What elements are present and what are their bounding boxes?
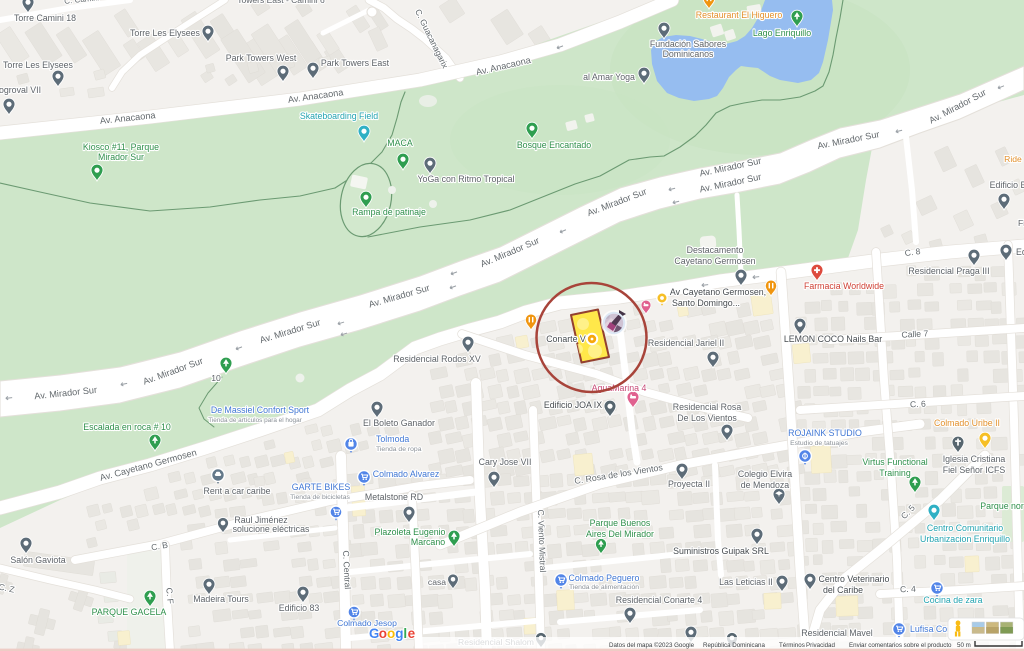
- svg-text:Farmacia Worldwide: Farmacia Worldwide: [804, 281, 884, 291]
- svg-text:Fiel Señor ICFS: Fiel Señor ICFS: [943, 465, 1006, 475]
- svg-text:Towers East - Camini 6: Towers East - Camini 6: [237, 0, 325, 5]
- svg-text:Virtus Functional: Virtus Functional: [862, 457, 927, 467]
- svg-text:Marcano: Marcano: [411, 537, 445, 547]
- svg-text:l: l: [403, 626, 407, 641]
- svg-text:Residencial Rosa: Residencial Rosa: [673, 402, 742, 412]
- svg-text:del Caribe: del Caribe: [823, 585, 863, 595]
- svg-text:C. F: C. F: [164, 587, 175, 604]
- svg-text:Privacidad: Privacidad: [806, 642, 835, 649]
- svg-text:10: 10: [211, 373, 221, 383]
- svg-text:Proyecta II: Proyecta II: [668, 479, 710, 489]
- svg-text:Fis: Fis: [1018, 218, 1024, 228]
- svg-text:Datos del mapa ©2023 Google: Datos del mapa ©2023 Google: [609, 642, 695, 649]
- svg-text:El Boleto Ganador: El Boleto Ganador: [363, 418, 435, 428]
- svg-text:Residencial Praga III: Residencial Praga III: [908, 266, 989, 276]
- svg-text:Restaurant El Higuero: Restaurant El Higuero: [696, 10, 783, 20]
- svg-text:Ride: Ride: [1004, 154, 1022, 164]
- svg-text:Ed: Ed: [1016, 247, 1024, 257]
- svg-text:Colegio Elvira: Colegio Elvira: [738, 469, 792, 479]
- svg-text:Colmado Peguero: Colmado Peguero: [569, 573, 640, 583]
- svg-text:ogroval VII: ogroval VII: [0, 85, 41, 95]
- svg-text:Training: Training: [879, 468, 911, 478]
- svg-text:Parque Buenos: Parque Buenos: [590, 518, 651, 528]
- svg-text:Enviar comentarios sobre el pr: Enviar comentarios sobre el producto: [849, 642, 952, 649]
- svg-text:Rampa de patinaje: Rampa de patinaje: [352, 207, 426, 217]
- svg-text:Plazoleta Eugenio: Plazoleta Eugenio: [375, 527, 446, 537]
- svg-text:Fundación Sabores: Fundación Sabores: [650, 39, 727, 49]
- svg-text:Tienda de artículos para el ho: Tienda de artículos para el hogar: [208, 417, 302, 424]
- svg-text:De Los Vientos: De Los Vientos: [677, 413, 737, 423]
- svg-text:Metalstone RD: Metalstone RD: [365, 492, 423, 502]
- svg-text:Kiosco #11, Parque: Kiosco #11, Parque: [83, 142, 159, 152]
- svg-text:Torre Les Elysees: Torre Les Elysees: [130, 28, 201, 38]
- svg-text:casa: casa: [428, 577, 446, 587]
- svg-text:Calle 7: Calle 7: [901, 328, 928, 339]
- svg-text:solucione eléctricas: solucione eléctricas: [233, 524, 310, 534]
- svg-text:GARTE BIKES: GARTE BIKES: [292, 482, 351, 492]
- svg-text:C. 6: C. 6: [910, 399, 926, 410]
- svg-text:Park Towers West: Park Towers West: [226, 53, 297, 63]
- svg-text:Colmado Uribe II: Colmado Uribe II: [934, 418, 1000, 428]
- svg-text:Residencial Mavel: Residencial Mavel: [801, 628, 872, 638]
- svg-text:Términos: Términos: [779, 642, 805, 649]
- svg-text:de Mendoza: de Mendoza: [741, 480, 790, 490]
- svg-text:Tolmoda: Tolmoda: [376, 434, 409, 444]
- svg-text:Skateboarding Field: Skateboarding Field: [300, 111, 378, 121]
- svg-text:Rent a car caribe: Rent a car caribe: [204, 486, 271, 496]
- svg-text:Av Cayetano Germosen,: Av Cayetano Germosen,: [670, 287, 766, 297]
- svg-text:Cayetano Germosen: Cayetano Germosen: [674, 256, 755, 266]
- svg-text:Torre Camini 18: Torre Camini 18: [14, 13, 76, 23]
- svg-text:LEMON COCO Nails Bar: LEMON COCO Nails Bar: [784, 334, 882, 344]
- svg-text:50 m: 50 m: [957, 642, 971, 649]
- svg-text:Bosque Encantado: Bosque Encantado: [517, 140, 591, 150]
- svg-text:C. 4: C. 4: [900, 584, 916, 595]
- svg-text:MACA: MACA: [387, 138, 413, 148]
- svg-text:Edificio 83: Edificio 83: [279, 603, 320, 613]
- svg-text:Dominicanos: Dominicanos: [663, 49, 714, 59]
- svg-text:Residencial Rodos XV: Residencial Rodos XV: [393, 354, 481, 364]
- svg-text:Mirador Sur: Mirador Sur: [98, 152, 144, 162]
- svg-text:Estudio de tatuajes: Estudio de tatuajes: [790, 440, 848, 447]
- svg-text:al Amar Yoga: al Amar Yoga: [583, 72, 635, 82]
- svg-text:Colmado Alvarez: Colmado Alvarez: [373, 469, 440, 479]
- svg-text:Las Leticias II: Las Leticias II: [719, 577, 773, 587]
- svg-text:Residencial Conarte 4: Residencial Conarte 4: [616, 595, 703, 605]
- svg-text:Aires Del Mirador: Aires Del Mirador: [586, 529, 654, 539]
- svg-text:Suministros Guipak SRL: Suministros Guipak SRL: [673, 546, 769, 556]
- svg-text:Madeira Tours: Madeira Tours: [193, 594, 249, 604]
- svg-text:Centro Comunitario: Centro Comunitario: [927, 523, 1003, 533]
- svg-text:Edificio B: Edificio B: [990, 180, 1024, 190]
- svg-text:Conarte V: Conarte V: [546, 334, 586, 344]
- svg-text:Residencial Jariel II: Residencial Jariel II: [648, 338, 724, 348]
- svg-text:ROJAINK STUDIO: ROJAINK STUDIO: [788, 428, 862, 438]
- svg-text:Cary Jose VII: Cary Jose VII: [479, 457, 532, 467]
- svg-text:o: o: [379, 626, 387, 641]
- svg-text:Escalada en roca # 10: Escalada en roca # 10: [83, 422, 171, 432]
- svg-text:Urbanizacion Enriquillo: Urbanizacion Enriquillo: [920, 534, 1010, 544]
- svg-text:Parque nor: Parque nor: [980, 501, 1024, 511]
- svg-text:PARQUE GACELA: PARQUE GACELA: [92, 607, 167, 617]
- svg-text:República Dominicana: República Dominicana: [703, 642, 765, 649]
- svg-text:Tienda de alimentación: Tienda de alimentación: [569, 584, 639, 591]
- svg-text:Lago Enriquillo: Lago Enriquillo: [753, 28, 811, 38]
- svg-text:Torre Les Elysees: Torre Les Elysees: [3, 60, 74, 70]
- svg-text:YoGa con Ritmo Tropical: YoGa con Ritmo Tropical: [418, 174, 515, 184]
- svg-text:Salón Gaviota: Salón Gaviota: [10, 555, 65, 565]
- svg-text:Cocina de zara: Cocina de zara: [923, 595, 982, 605]
- svg-text:De Massiel Confort Sport: De Massiel Confort Sport: [211, 405, 310, 415]
- svg-text:Park Towers East: Park Towers East: [321, 58, 390, 68]
- svg-text:g: g: [395, 626, 403, 641]
- svg-text:e: e: [408, 626, 416, 641]
- svg-text:Santo Domingo...: Santo Domingo...: [672, 298, 740, 308]
- svg-text:Iglesia Cristiana: Iglesia Cristiana: [943, 454, 1006, 464]
- svg-text:Destacamento: Destacamento: [687, 245, 744, 255]
- svg-text:Tienda de ropa: Tienda de ropa: [376, 446, 422, 453]
- svg-text:Edificio JOA IX: Edificio JOA IX: [544, 400, 602, 410]
- svg-text:C. Central: C. Central: [341, 550, 353, 589]
- svg-text:Centro Veterinario: Centro Veterinario: [819, 574, 890, 584]
- svg-text:Tienda de bicicletas: Tienda de bicicletas: [290, 494, 350, 501]
- svg-text:o: o: [387, 626, 395, 641]
